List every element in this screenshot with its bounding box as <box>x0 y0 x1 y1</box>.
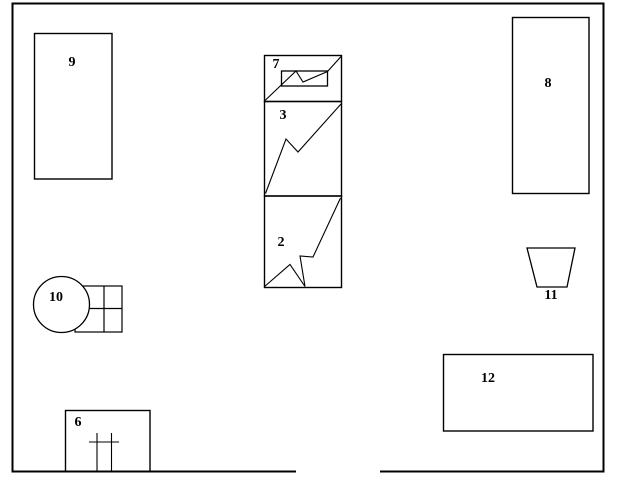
zone-3-crack-line <box>266 104 342 194</box>
zone-6-label: 6 <box>75 416 82 430</box>
zone-11-trapezoid <box>527 248 575 287</box>
zone-9-label: 9 <box>69 56 76 70</box>
room-outline <box>13 4 604 472</box>
zone-3-label: 3 <box>280 109 287 123</box>
zone-8-rect <box>513 18 590 194</box>
zone-12-label: 12 <box>481 372 495 386</box>
zone-2-label: 2 <box>278 236 285 250</box>
floor-plan-canvas: 9 7 3 2 8 10 11 12 6 <box>0 0 618 483</box>
zone-7-label: 7 <box>273 58 280 72</box>
zone-10-label: 10 <box>49 291 63 305</box>
zone-8-label: 8 <box>545 77 552 91</box>
zone-12-rect <box>444 355 594 432</box>
zone-11-label: 11 <box>544 289 557 303</box>
zone-2-crack-line <box>264 198 341 287</box>
floor-plan-drawing <box>0 0 618 483</box>
